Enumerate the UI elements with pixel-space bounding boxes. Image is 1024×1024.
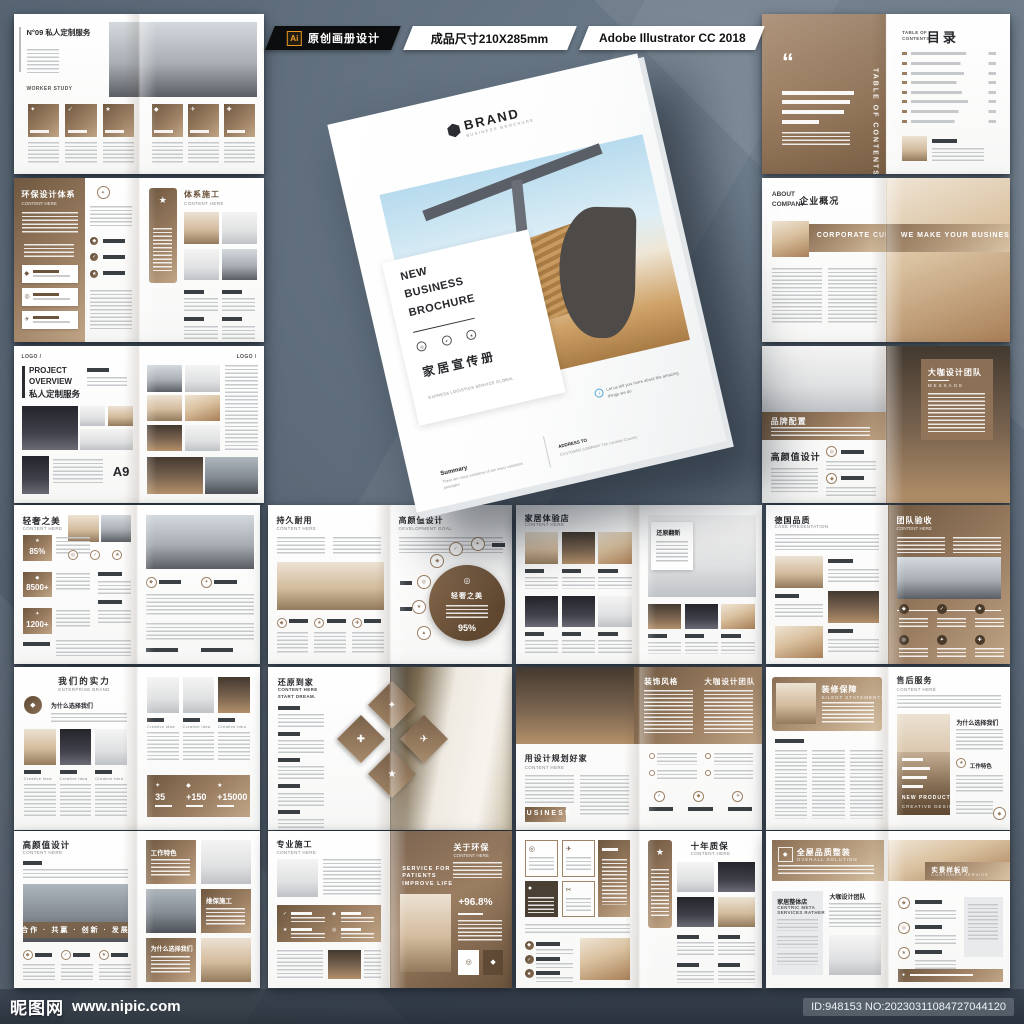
- caption-bar: [227, 130, 246, 133]
- text-lines: [677, 942, 714, 956]
- text-lines: [61, 964, 93, 980]
- section-label: ABOUT: [772, 191, 795, 198]
- section-number: N°09: [27, 28, 44, 37]
- text-lines: [183, 732, 215, 761]
- store-photo: [886, 178, 1010, 342]
- store-photo: [562, 596, 595, 628]
- text-lines: [775, 534, 880, 550]
- text-lines: [24, 244, 74, 257]
- page-right: 工作特色 维保施工 为什么选择我们: [137, 831, 260, 988]
- text-lines: [718, 971, 755, 984]
- page-left: 德国品质 CASE PRESENTATION: [766, 505, 888, 664]
- page-left: ◎ ✈ ● ✂ ◆ ✓ ★: [516, 831, 639, 988]
- star-icon: ★: [314, 618, 324, 628]
- page-left: ABOUT COMPANY 企业概况 CORPORATE CULTURE: [762, 178, 886, 342]
- text-lines: [152, 142, 183, 164]
- caption-bar: [598, 632, 618, 636]
- caption-bar: [68, 130, 87, 133]
- logo-label: LOGO /: [237, 354, 257, 360]
- text-lines: [580, 775, 629, 817]
- interior-photo: [101, 515, 131, 542]
- text-lines: [826, 487, 876, 496]
- gem-icon: ◆: [490, 958, 495, 966]
- text-lines: [51, 713, 127, 724]
- star-icon: ★: [956, 758, 966, 768]
- feature-label: 工作特色: [970, 762, 992, 770]
- text-lines: [937, 648, 966, 658]
- section-subtitle: CONTENT HERE: [691, 851, 731, 856]
- caption-bar: [536, 957, 561, 961]
- tag-label: 成品尺寸210X285mm: [431, 30, 548, 47]
- text-lines: [151, 956, 190, 974]
- text-lines: [525, 577, 558, 590]
- page-left: LOGO / PROJECT OVERVIEW 私人定制服务 A9: [14, 346, 139, 503]
- star-icon: ★: [105, 106, 110, 113]
- text-lines: [352, 632, 384, 653]
- section-subtitle: CONTENT HERE: [525, 765, 565, 770]
- check-icon: ✓: [90, 253, 98, 261]
- text-lines: [536, 963, 573, 969]
- toc-item: [902, 120, 996, 123]
- caption-bar: [33, 270, 59, 273]
- check-icon: ✓: [449, 542, 463, 556]
- text-lines: [525, 924, 631, 935]
- tag-label: 原创画册设计: [308, 30, 380, 46]
- divider: [543, 436, 551, 467]
- quote-text-bar: [782, 110, 844, 114]
- interior-photo: [147, 677, 179, 713]
- text-lines: [446, 605, 489, 619]
- gem-icon: ◆: [146, 577, 157, 588]
- text-lines: [56, 573, 90, 590]
- caption-bar: [841, 450, 863, 454]
- caption-bar: [278, 810, 300, 814]
- dot-icon: [705, 770, 711, 776]
- section-subtitle2: START DREAM.: [278, 694, 316, 699]
- caption-bar: [218, 718, 235, 722]
- caption-bar: [87, 368, 110, 372]
- stat-label-bar: [217, 805, 234, 807]
- gem-icon: ◆: [898, 897, 910, 909]
- spark-icon: ✦: [388, 700, 396, 711]
- text-lines: [23, 869, 129, 880]
- trophy-panel: ★: [149, 188, 177, 283]
- section-subtitle: CONTENT HERE: [278, 687, 318, 692]
- caption-bar: [23, 642, 50, 646]
- band-subtitle: CUSTOMER SERVICE: [931, 872, 988, 877]
- spark-icon: ✦: [155, 782, 160, 789]
- sofa-photo: [146, 515, 254, 569]
- caption-bar: [775, 594, 799, 598]
- interior-photo: [80, 406, 105, 426]
- star-icon: ★: [388, 768, 397, 779]
- card-title: 还原翻新: [656, 528, 680, 537]
- caption-bar: [35, 953, 52, 957]
- spread-table-of-contents: “ TABLE OF CONTENTS TABLE OF CONTENTS 目录: [762, 14, 1010, 174]
- text-lines: [899, 648, 928, 658]
- page-left: 持久耐用 CONTENT HERE ◆ ★ ✚: [268, 505, 390, 664]
- section-subtitle: DEVELOPMENT GOAL: [399, 526, 452, 531]
- title-bar: [22, 366, 25, 397]
- dot-icon: [705, 753, 711, 759]
- column-title: 大咖设计团队: [704, 676, 755, 687]
- side-text-bar: [19, 27, 21, 72]
- text-lines: [657, 770, 696, 781]
- text-lines: [648, 642, 681, 655]
- caption-bar: [525, 632, 545, 636]
- cover-title-cn: 家居宣传册: [421, 347, 498, 380]
- caption-bar: [677, 935, 699, 939]
- section-subtitle: CASE PRESENTATION: [775, 524, 829, 529]
- text-lines: [87, 377, 127, 388]
- caption-bar: [400, 607, 412, 611]
- section-subtitle: CONTENT HERE: [277, 526, 317, 531]
- cover-title-line: NEW: [399, 265, 428, 283]
- dot-icon: [649, 753, 655, 759]
- office-photo: [205, 457, 258, 493]
- caption-bar: [33, 316, 59, 319]
- caption-bar: [111, 953, 128, 957]
- section-title: 高颜值设计: [771, 450, 821, 463]
- caption-bar: [184, 290, 204, 294]
- text-lines: [536, 949, 573, 955]
- star-icon: ★: [35, 538, 39, 544]
- panel-title: 大咖设计团队: [928, 367, 982, 378]
- toc-label: TABLE OF: [902, 30, 927, 35]
- gem-icon: ◆: [430, 554, 444, 568]
- site-url: www.nipic.com: [72, 998, 181, 1015]
- text-lines: [278, 793, 324, 808]
- dark-card: ●: [525, 881, 558, 917]
- plane-icon: ✈: [566, 845, 572, 853]
- page-right: 关于环保 CONTENT HERE SERVICE FOR PATIENTS I…: [390, 831, 512, 988]
- feature-card: ✈: [22, 311, 78, 329]
- bathroom-photo: [677, 862, 714, 892]
- caption-bar: [718, 963, 740, 967]
- caption-bar: [915, 900, 942, 904]
- target-icon: ◎: [898, 922, 910, 934]
- caption-bar: [915, 925, 942, 929]
- text-lines: [956, 775, 1002, 795]
- text-lines: [718, 942, 755, 956]
- text-lines: [56, 610, 90, 627]
- target-icon: ◎: [464, 576, 471, 585]
- caption-bar: [222, 317, 242, 321]
- gem-icon: ◆: [35, 575, 39, 581]
- trophy-panel: ★: [648, 840, 673, 928]
- stat-box: ★85%: [23, 535, 53, 560]
- section-title-en: PROJECT: [29, 366, 67, 375]
- page-right: 还原翻新: [639, 505, 762, 664]
- toc-item: [902, 81, 996, 84]
- adobe-illustrator-icon: Ai: [287, 31, 302, 46]
- caption-bar: [649, 807, 674, 811]
- text-lines: [828, 569, 879, 585]
- gem-icon: ◆: [154, 106, 159, 113]
- list-bar: [902, 767, 930, 770]
- badge-icon: ✦: [97, 186, 110, 199]
- address-text: CUSTOMER COMPANY The Location Country: [560, 435, 642, 459]
- photo-overlay-list: NEW PRODUCTS CREATIVE DESIGN: [897, 752, 951, 816]
- slogan-band: 合作 · 共赢 · 创新 · 发展: [23, 922, 129, 938]
- caption-bar: [147, 718, 164, 722]
- text-lines: [915, 935, 956, 944]
- caption-bar: [598, 569, 618, 573]
- page-code: A9: [113, 464, 130, 479]
- text-lines: [525, 775, 574, 804]
- text-lines: [278, 819, 324, 829]
- section-title: 环保设计体系: [22, 189, 76, 200]
- caption-bar: [103, 239, 126, 243]
- why-choose-us-label: 为什么选择我们: [51, 701, 93, 710]
- text-lines: [562, 640, 595, 653]
- caption-bar: [23, 861, 43, 865]
- text-lines: [897, 537, 946, 553]
- text-lines: [677, 971, 714, 984]
- stat-label-bar: [155, 805, 172, 807]
- caption-bar: [364, 619, 381, 623]
- quote-text-bar: [782, 100, 850, 104]
- text-lines: [60, 784, 92, 817]
- cover-subtitle-en: EXPRESS LOGISTICS SERVICE GLOBAL: [428, 376, 514, 401]
- box-subtitle: SERVICES RATHER: [777, 910, 825, 915]
- caption-bar: [289, 619, 309, 623]
- note-box: [964, 897, 1003, 957]
- overlay-card: 还原翻新: [651, 522, 693, 570]
- text-lines: [314, 632, 346, 653]
- thumbnail-photo: [685, 604, 718, 629]
- text-lines: [333, 537, 382, 556]
- caption-bar: [278, 706, 300, 710]
- outline-card: ✈: [562, 840, 595, 876]
- text-lines: [341, 917, 375, 922]
- text-lines: [937, 618, 966, 629]
- gem-icon: ◆: [24, 270, 29, 277]
- check-icon: ✓: [68, 106, 73, 113]
- team-panel: 大咖设计团队 MESSAGE: [921, 359, 993, 441]
- interior-photo: [24, 729, 56, 765]
- wood-ceiling-photo: [147, 457, 203, 493]
- caption-bar: [828, 559, 852, 563]
- caption-bar: [183, 718, 200, 722]
- service-card: ★: [103, 104, 134, 138]
- text-lines: [95, 784, 127, 817]
- text-lines: [146, 623, 254, 642]
- text-lines: [151, 859, 190, 877]
- services-box: 家居整体店 CENTRIC META SERVICES RATHER: [772, 891, 823, 976]
- text-lines: [644, 690, 693, 733]
- gem-icon: ◆: [993, 807, 1006, 820]
- text-lines: [453, 862, 502, 878]
- text-lines: [458, 920, 502, 942]
- text-lines: [218, 732, 250, 761]
- caption-bar: [841, 476, 863, 480]
- star-icon: ★: [283, 927, 287, 933]
- toc-title: 目录: [927, 27, 959, 46]
- slogan-band: WE MAKE YOUR BUSINESS!: [886, 224, 1010, 252]
- caption-bar: [721, 634, 741, 638]
- quote-icon: “: [782, 49, 794, 77]
- store-photo: [562, 532, 595, 564]
- caption-bar: [648, 634, 668, 638]
- dot-icon: [649, 770, 655, 776]
- toc-item: [902, 91, 996, 94]
- caption-bar: [103, 255, 126, 259]
- plus-icon: ✚: [227, 106, 232, 113]
- section-title: 私人定制服务: [45, 28, 90, 37]
- caption-bar: [492, 543, 504, 547]
- band-subtitle: SILENT STATEMENTS: [822, 695, 886, 700]
- toc-label: CONTENTS: [902, 36, 930, 41]
- section-title: 企业概况: [799, 194, 839, 207]
- check-icon: ✓: [937, 604, 947, 614]
- text-lines: [22, 212, 78, 235]
- interior-photo: [222, 249, 257, 280]
- interior-photo: [147, 395, 182, 422]
- section-title: 体系施工: [184, 189, 220, 200]
- check-icon: ✓: [525, 955, 534, 964]
- text-lines: [529, 857, 554, 871]
- goal-circle: ◎ 轻奢之美 95%: [429, 565, 505, 641]
- spread-private-custom-service: N°09 私人定制服务 WORKER STUDY ✦ ✓ ★ ◆ ✈ ✚: [14, 14, 264, 174]
- section-title: 售后服务: [897, 675, 933, 686]
- text-lines: [28, 142, 59, 164]
- page-right: ◆ ✦: [137, 505, 260, 664]
- gem-icon: ◆: [693, 791, 704, 802]
- label-band: 实景样板间 CUSTOMER SERVICE: [925, 862, 1010, 879]
- circle-title: 轻奢之美: [451, 591, 483, 601]
- caption-bar: [602, 848, 618, 851]
- text-lines: [771, 427, 870, 437]
- interior-photo: [147, 425, 182, 452]
- spark-icon: ✦: [201, 577, 212, 588]
- target-icon: ◎: [826, 446, 837, 457]
- text-lines: [771, 468, 818, 493]
- star-icon: ★: [898, 947, 910, 959]
- guarantee-band: 装修保障 SILENT STATEMENTS: [772, 677, 882, 731]
- header-band: ◆ 全屋品质整装 OVERALL SOLUTION: [772, 840, 884, 881]
- gem-icon: ◆: [277, 618, 287, 628]
- caption-bar: [718, 935, 740, 939]
- page-left: ◆ 全屋品质整装 OVERALL SOLUTION 家居整体店 CENTRIC …: [766, 831, 888, 988]
- speech-box: 维保施工: [201, 889, 251, 933]
- target-icon: ◎: [24, 293, 29, 300]
- gem-icon: ◆: [186, 782, 191, 789]
- spread-decor-style: 用设计规划好家 CONTENT HERE BUSINESS ✓ ◆ ✈ 装饰风格…: [516, 667, 762, 830]
- caption-en: Creative Idea: [183, 724, 211, 729]
- team-label: 大咖设计团队: [829, 892, 865, 901]
- store-photo: [525, 532, 558, 564]
- text-lines: [775, 604, 824, 620]
- np-label: NEW PRODUCTS: [902, 795, 955, 801]
- caption-bar: [103, 271, 126, 275]
- cover-brand-lockup: BRAND BUSINESS BROCHURE: [445, 102, 535, 141]
- target-icon: ◎: [417, 575, 431, 589]
- text-lines: [24, 784, 56, 817]
- dot-icon: ●: [902, 972, 905, 978]
- plane-icon: ✈: [24, 316, 29, 323]
- spread-cooperation: 高颜值设计 CONTENT HERE 合作 · 共赢 · 创新 · 发展 ◆ ✓…: [14, 831, 260, 988]
- speech-box: 工作特色: [146, 840, 196, 884]
- service-line: PATIENTS: [402, 873, 436, 879]
- interior-photo: [218, 677, 250, 713]
- gem-icon: ◆: [826, 473, 837, 484]
- store-photo: [525, 596, 558, 628]
- slogan-text: 合作 · 共赢 · 创新 · 发展: [21, 925, 130, 935]
- plane-icon: ✈: [420, 734, 428, 745]
- gem-icon: ◆: [23, 950, 33, 960]
- text-lines: [897, 695, 1002, 708]
- page-right: 实景样板间 CUSTOMER SERVICE ◆ ◎ ★ ●: [888, 831, 1010, 988]
- caption-bar: [932, 139, 957, 143]
- spread-enterprise-strength: 我们的实力 ENTERPRISE BRAND ◆ 为什么选择我们 Creativ…: [14, 667, 260, 830]
- interior-photo: [775, 626, 824, 658]
- star-icon: ★: [525, 969, 534, 978]
- caption-bar: [775, 739, 804, 743]
- text-lines: [899, 618, 928, 629]
- living-room-photo: [829, 935, 880, 976]
- section-subtitle: CONTENT HERE: [277, 850, 317, 855]
- speech-box: 为什么选择我们: [146, 938, 196, 982]
- text-lines: [222, 326, 256, 339]
- feature-card: ◎: [22, 288, 78, 306]
- text-lines: [828, 639, 879, 655]
- culture-band: CORPORATE CULTURE: [809, 224, 886, 252]
- hexagon-logo-icon: [446, 122, 463, 139]
- footer-text-bar: [910, 974, 973, 976]
- caption-bar: [30, 130, 49, 133]
- text-lines: [27, 49, 60, 75]
- box-title: 维保施工: [206, 895, 232, 905]
- target-icon: ◎: [416, 341, 428, 353]
- spread-ten-year-warranty: ◎ ✈ ● ✂ ◆ ✓ ★ ★ 十年质保 CONTENT HERE: [516, 831, 762, 988]
- stat-value: 85%: [29, 547, 45, 556]
- section-subtitle: CONTENT HERE: [525, 522, 565, 527]
- text-lines: [714, 770, 753, 781]
- text-lines: [953, 537, 1002, 553]
- caption-bar: [688, 807, 713, 811]
- text-lines: [278, 714, 324, 729]
- section-title-en: OVERVIEW: [29, 377, 72, 386]
- caption-bar: [95, 770, 112, 774]
- text-lines: [657, 753, 696, 764]
- plane-icon: ✈: [190, 106, 195, 113]
- box-title: 工作特色: [151, 847, 177, 857]
- star-icon: ★: [975, 604, 985, 614]
- spiral-side: [558, 206, 636, 338]
- spread-project-overview: LOGO / PROJECT OVERVIEW 私人定制服务 A9 LOGO /: [14, 346, 264, 503]
- page-right: 团队验收 CONTENT HERE ◆ ✓ ★ ◎ ✦ ✚: [888, 505, 1010, 664]
- text-lines: [277, 632, 309, 653]
- text-lines: [928, 393, 986, 432]
- gem-icon: ◆: [332, 911, 336, 917]
- page-right: ★ 十年质保 CONTENT HERE: [639, 831, 762, 988]
- spread-light-luxury: 轻奢之美 CONTENT HERE ★85% ◆8500+ ✦1200+ ◎ ✓…: [14, 505, 260, 664]
- caption-bar: [105, 130, 124, 133]
- brown-header: 装饰风格 大咖设计团队: [634, 667, 762, 744]
- quote-text-bar: [782, 120, 819, 124]
- stats-banner: ✦ 35 ◆ +150 ★ +15000: [147, 775, 250, 817]
- section-subtitle: CONTENT HERE: [897, 687, 937, 692]
- text-lines: [103, 142, 134, 164]
- cover-address: ADDRESS TO CUSTOMER COMPANY The Location…: [556, 417, 642, 459]
- caption-bar: [146, 648, 178, 652]
- dark-interior-photo: [22, 406, 78, 450]
- interior-photo: [95, 729, 127, 765]
- check-icon: ✓: [283, 911, 287, 917]
- text-lines: [721, 642, 754, 655]
- image-id-badge: ID:948153 NO:20230311084727044120: [803, 998, 1014, 1016]
